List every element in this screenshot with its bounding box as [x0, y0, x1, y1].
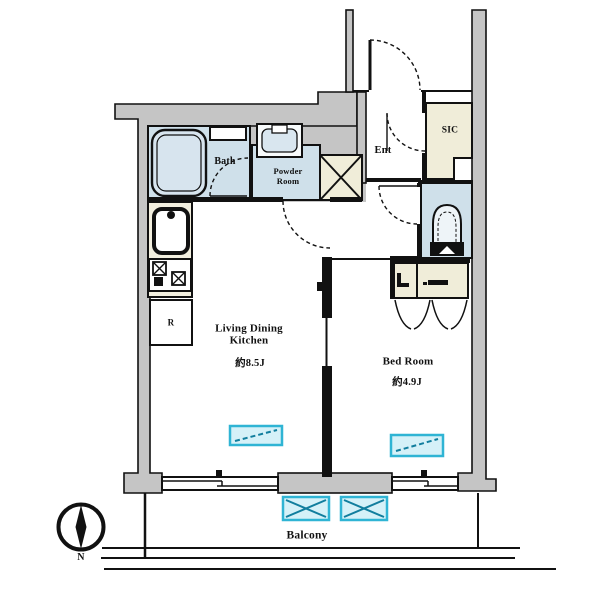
- powder-room-label-line1: Powder: [273, 167, 302, 176]
- washing-machine-space: [320, 155, 362, 200]
- balcony-label: Balcony: [286, 530, 327, 542]
- sic-label: SIC: [442, 126, 458, 136]
- entrance-hall-divider-wall: [366, 178, 421, 182]
- balcony-area: [101, 493, 556, 569]
- ldk-ac-box: [230, 426, 282, 445]
- floor-plan: Bath Powder Room Ent SIC R Living Dining…: [0, 0, 602, 601]
- ldk-window-tick: [216, 470, 222, 477]
- powder-room-door-arc: [283, 201, 330, 248]
- bottom-middle-wall: [278, 473, 392, 493]
- kitchen-faucet-icon: [167, 211, 175, 219]
- floor-plan-drawing: [0, 0, 602, 601]
- partition-wall-upper: [322, 257, 332, 318]
- sic-door-arc: [387, 113, 425, 151]
- washbasin-faucet-icon: [272, 125, 287, 133]
- bedroom-window-tick: [421, 470, 427, 477]
- refrigerator-label: R: [168, 319, 175, 328]
- bedroom-ac-unit: [391, 435, 443, 456]
- compass-needle: [76, 505, 87, 549]
- corridor-left-wall: [346, 10, 353, 92]
- ldk-label-line2: Kitchen: [230, 336, 269, 347]
- ldk-ac-unit: [230, 426, 282, 445]
- partition-sliding-door: [326, 318, 328, 366]
- toilet-door-arc: [379, 186, 417, 224]
- sic-closet: [426, 103, 472, 179]
- bedroom-window-frame: [392, 477, 458, 490]
- bathtub-icon: [152, 130, 206, 196]
- closet-left-hanger-icon2: [397, 273, 401, 287]
- bedroom-closet: [394, 263, 468, 329]
- bath-counter: [210, 127, 246, 140]
- powder-room-label-line2: Room: [277, 177, 300, 186]
- ldk-size-label: 約8.5J: [235, 359, 265, 370]
- ldk-label-line1: Living Dining: [215, 324, 283, 335]
- entrance-label: Ent: [375, 146, 392, 157]
- bedroom-label: Bed Room: [383, 357, 434, 368]
- toilet-room: [379, 183, 472, 258]
- compass-icon: [59, 505, 104, 550]
- stove-grill-icon: [154, 277, 163, 286]
- bedroom-sliding-door: [332, 258, 390, 260]
- bedroom-size-label: 約4.9J: [392, 378, 422, 389]
- closet-right-hanger-tip: [423, 282, 427, 285]
- compass-north-label: N: [77, 553, 84, 563]
- bath-label: Bath: [214, 157, 235, 167]
- closet-bifold-doors: [395, 300, 467, 329]
- closet-right-hanger-icon: [428, 280, 448, 285]
- ldk-window-frame: [162, 477, 278, 490]
- partition-wall-lower: [322, 366, 332, 477]
- front-door-arc: [370, 40, 420, 90]
- wetarea-bottom-wall-right: [330, 197, 362, 202]
- ldk-window: [162, 470, 278, 490]
- bedroom-ac-box: [391, 435, 443, 456]
- partition-door-stop: [317, 282, 322, 291]
- bedroom-window: [392, 470, 458, 490]
